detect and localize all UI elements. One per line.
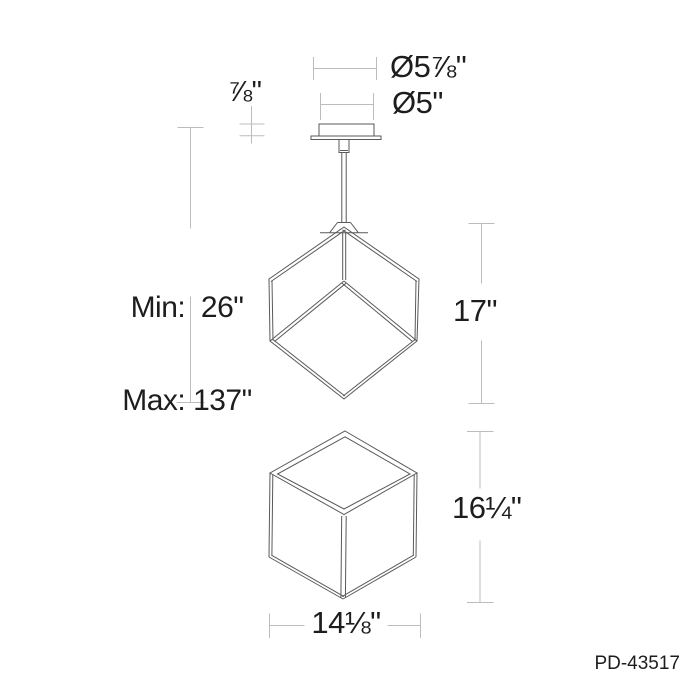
cube-top-face-inner (278, 437, 411, 509)
diamond-cube-pendant (269, 227, 419, 399)
stem-rod (320, 153, 368, 233)
diamond-cube-y-branches (270, 281, 417, 342)
canopy (311, 124, 381, 153)
canopy-flange (311, 136, 381, 140)
dimension-diagram: Ø5⅞" Ø5" ⅞" Min: 26" Max: 137" 17" 16¼" … (0, 0, 700, 700)
cube-right-edge (413, 473, 417, 557)
cube-bottom-edges (269, 555, 416, 599)
fixture-height-label: 17" (453, 295, 497, 328)
dim-canopy-diameter (321, 93, 374, 120)
dim-canopy-height (240, 106, 265, 144)
dim-canopy-outer-diameter (314, 57, 377, 80)
product-code: PD-43517 (594, 653, 680, 675)
cube-height-label: 16¼" (452, 492, 521, 525)
rod-lines (342, 153, 346, 223)
canopy-outer-diameter-label: Ø5⅞" (390, 51, 466, 84)
cube-top-face-outer (270, 431, 417, 515)
canopy-height-label: ⅞" (228, 77, 261, 107)
canopy-diameter-label: Ø5" (392, 87, 443, 120)
line-art (0, 0, 700, 700)
cube-left-edge (269, 473, 273, 557)
canopy-body (319, 124, 374, 136)
suspension-range-label: Min: 26" Max: 137" (108, 230, 266, 478)
cube-front-edge (341, 516, 346, 598)
rod-socket (339, 140, 349, 153)
diamond-cube-silhouette (269, 227, 419, 399)
diamond-cube-frame-inner-lines (271, 230, 417, 396)
suspension-max-label: Max: 137" (108, 385, 266, 416)
cube-bottom-view (269, 431, 417, 599)
diamond-cube-center-edge (343, 233, 346, 280)
suspension-min-label: Min: 26" (108, 292, 266, 323)
fixture-line-art (269, 124, 419, 599)
cube-width-label: 14⅛" (300, 607, 392, 640)
